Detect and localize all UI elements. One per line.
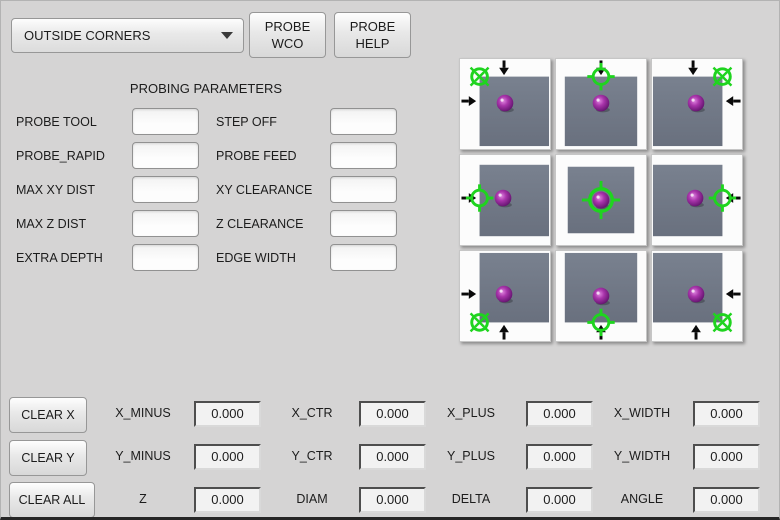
- extra-depth-label: EXTRA DEPTH: [16, 251, 103, 265]
- param-row: MAX XY DIST XY CLEARANCE: [1, 176, 421, 204]
- probe-cell-center[interactable]: [555, 154, 647, 246]
- probe-help-label-line1: PROBE: [350, 18, 396, 35]
- z-clearance-input[interactable]: [330, 210, 397, 237]
- y-width-value: 0.000: [693, 444, 760, 470]
- angle-value: 0.000: [693, 487, 760, 513]
- angle-label: ANGLE: [597, 487, 687, 506]
- probe-cell-bottom-edge[interactable]: [555, 250, 647, 342]
- z-clearance-label: Z CLEARANCE: [216, 217, 304, 231]
- y-ctr-value: 0.000: [359, 444, 426, 470]
- x-width-value: 0.000: [693, 401, 760, 427]
- max-xy-dist-label: MAX XY DIST: [16, 183, 95, 197]
- x-minus-label: X_MINUS: [98, 401, 188, 420]
- probe-cell-bottom-left-corner[interactable]: [459, 250, 551, 342]
- edge-width-input[interactable]: [330, 244, 397, 271]
- sphere-icon: [688, 95, 705, 112]
- probe-cell-top-edge[interactable]: [555, 58, 647, 150]
- probe-feed-input[interactable]: [330, 142, 397, 169]
- extra-depth-input[interactable]: [132, 244, 199, 271]
- y-width-label: Y_WIDTH: [597, 444, 687, 463]
- probe-wco-label-line1: PROBE: [265, 18, 311, 35]
- probe-cell-top-left-corner[interactable]: [459, 58, 551, 150]
- x-width-label: X_WIDTH: [597, 401, 687, 420]
- probe-cell-graphic-top-right-corner: [652, 59, 742, 149]
- sphere-icon: [495, 190, 512, 207]
- clear-x-button[interactable]: CLEAR X: [9, 397, 87, 433]
- y-plus-value: 0.000: [526, 444, 593, 470]
- param-row: MAX Z DIST Z CLEARANCE: [1, 210, 421, 238]
- probe-cell-graphic-right-edge: [652, 155, 742, 245]
- probe-cell-graphic-bottom-edge: [556, 251, 646, 341]
- probe-tool-label: PROBE TOOL: [16, 115, 97, 129]
- sphere-icon: [688, 286, 705, 303]
- probe-rapid-label: PROBE_RAPID: [16, 149, 105, 163]
- probe-cell-bottom-right-corner[interactable]: [651, 250, 743, 342]
- probe-cell-graphic-bottom-right-corner: [652, 251, 742, 341]
- x-plus-value: 0.000: [526, 401, 593, 427]
- y-minus-value: 0.000: [194, 444, 261, 470]
- x-ctr-label: X_CTR: [267, 401, 357, 420]
- probe-rapid-input[interactable]: [132, 142, 199, 169]
- probe-feed-label: PROBE FEED: [216, 149, 297, 163]
- probe-cell-graphic-top-left-corner: [460, 59, 550, 149]
- probing-parameters-title: PROBING PARAMETERS: [11, 81, 401, 96]
- sphere-icon: [497, 95, 514, 112]
- probe-wco-label-line2: WCO: [272, 35, 304, 52]
- probe-mode-select[interactable]: OUTSIDE CORNERS: [11, 18, 244, 53]
- x-minus-value: 0.000: [194, 401, 261, 427]
- y-minus-label: Y_MINUS: [98, 444, 188, 463]
- probe-mode-value: OUTSIDE CORNERS: [24, 28, 221, 43]
- sphere-icon: [593, 95, 610, 112]
- probe-cell-graphic-top-edge: [556, 59, 646, 149]
- clear-y-button[interactable]: CLEAR Y: [9, 440, 87, 476]
- diam-label: DIAM: [267, 487, 357, 506]
- probe-cell-graphic-center: [556, 155, 646, 245]
- xy-clearance-label: XY CLEARANCE: [216, 183, 312, 197]
- param-row: PROBE TOOL STEP OFF: [1, 108, 421, 136]
- max-z-dist-input[interactable]: [132, 210, 199, 237]
- probe-tool-input[interactable]: [132, 108, 199, 135]
- sphere-icon: [593, 192, 610, 209]
- probe-cell-left-edge[interactable]: [459, 154, 551, 246]
- probe-help-label-line2: HELP: [356, 35, 390, 52]
- x-ctr-value: 0.000: [359, 401, 426, 427]
- param-row: PROBE_RAPID PROBE FEED: [1, 142, 421, 170]
- step-off-label: STEP OFF: [216, 115, 277, 129]
- z-value: 0.000: [194, 487, 261, 513]
- probe-screen: OUTSIDE CORNERS PROBE WCO PROBE HELP PRO…: [0, 0, 780, 520]
- step-off-input[interactable]: [330, 108, 397, 135]
- probe-wco-button[interactable]: PROBE WCO: [249, 12, 326, 58]
- diam-value: 0.000: [359, 487, 426, 513]
- sphere-icon: [496, 286, 513, 303]
- x-plus-label: X_PLUS: [426, 401, 516, 420]
- y-ctr-label: Y_CTR: [267, 444, 357, 463]
- chevron-down-icon: [221, 32, 233, 39]
- z-label: Z: [98, 487, 188, 506]
- max-xy-dist-input[interactable]: [132, 176, 199, 203]
- max-z-dist-label: MAX Z DIST: [16, 217, 86, 231]
- probe-position-grid: [459, 58, 743, 342]
- delta-label: DELTA: [426, 487, 516, 506]
- probe-cell-right-edge[interactable]: [651, 154, 743, 246]
- edge-width-label: EDGE WIDTH: [216, 251, 296, 265]
- sphere-icon: [687, 190, 704, 207]
- sphere-icon: [593, 288, 610, 305]
- clear-all-button[interactable]: CLEAR ALL: [9, 482, 95, 518]
- probe-cell-top-right-corner[interactable]: [651, 58, 743, 150]
- probe-help-button[interactable]: PROBE HELP: [334, 12, 411, 58]
- probe-cell-graphic-bottom-left-corner: [460, 251, 550, 341]
- delta-value: 0.000: [526, 487, 593, 513]
- param-row: EXTRA DEPTH EDGE WIDTH: [1, 244, 421, 272]
- probe-cell-graphic-left-edge: [460, 155, 550, 245]
- xy-clearance-input[interactable]: [330, 176, 397, 203]
- y-plus-label: Y_PLUS: [426, 444, 516, 463]
